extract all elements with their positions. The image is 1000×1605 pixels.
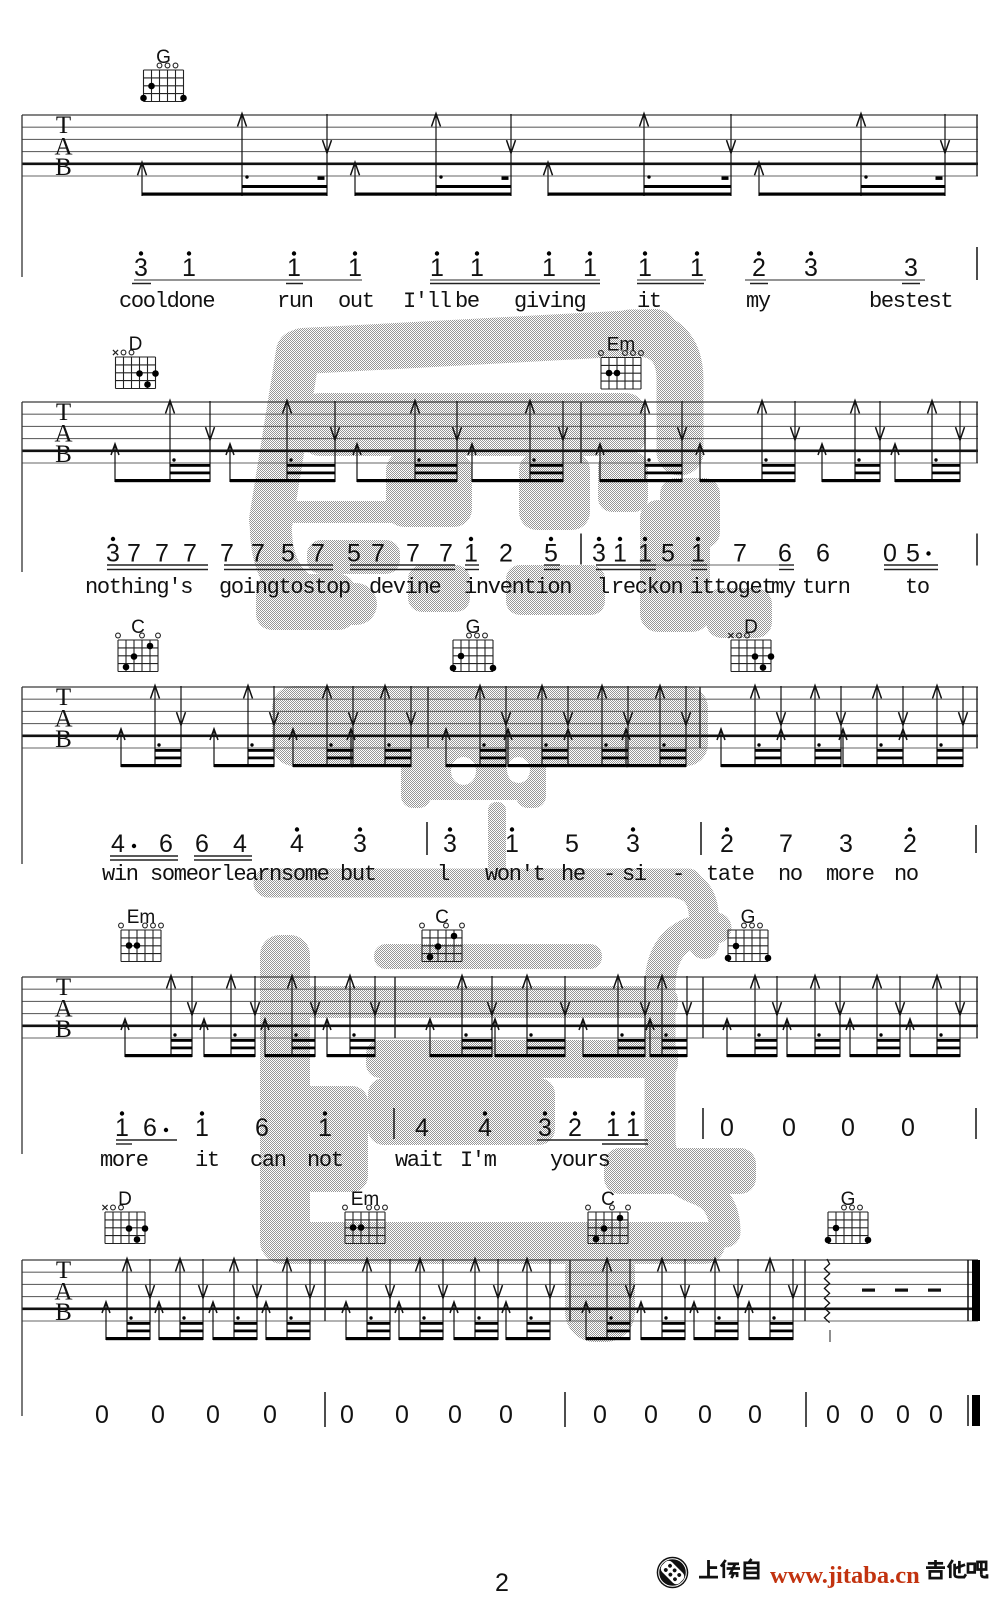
svg-text:0: 0 [860,1401,874,1429]
svg-text:no: no [778,862,802,887]
svg-text:G: G [156,47,171,68]
svg-text:1: 1 [638,540,652,568]
svg-text:more: more [826,862,874,887]
svg-text:B: B [55,441,72,468]
svg-text:but: but [340,862,376,887]
svg-text:7: 7 [220,540,234,568]
svg-text:0: 0 [782,1114,796,1142]
svg-text:7: 7 [155,540,169,568]
svg-text:Em: Em [127,907,156,928]
svg-text:won't: won't [485,862,545,887]
svg-text:not: not [307,1148,343,1173]
svg-text:0: 0 [826,1401,840,1429]
svg-text:7: 7 [733,540,747,568]
svg-text:0: 0 [593,1401,607,1429]
svg-text:2: 2 [568,1114,582,1142]
svg-text:devine: devine [369,575,441,600]
svg-text:l: l [597,575,609,600]
svg-text:1: 1 [430,254,444,282]
svg-text:3: 3 [904,254,918,282]
svg-text:0: 0 [95,1401,109,1429]
svg-text:1: 1 [348,254,362,282]
svg-text:3: 3 [106,540,120,568]
svg-text:6: 6 [143,1114,157,1142]
svg-text:C: C [131,617,145,638]
svg-text:reckon: reckon [611,575,683,600]
svg-text:he: he [561,862,585,887]
svg-text:Em: Em [351,1189,380,1210]
svg-text:my: my [771,575,796,600]
svg-text:I'm: I'm [460,1148,497,1173]
svg-text:6: 6 [195,830,209,858]
svg-text:7: 7 [183,540,197,568]
svg-text:0: 0 [883,540,897,568]
svg-text:-: - [672,862,684,887]
svg-text:-: - [603,862,615,887]
svg-text:2: 2 [495,1569,509,1597]
svg-text:more: more [100,1148,148,1173]
svg-text:5: 5 [544,540,558,568]
svg-text:5: 5 [281,540,295,568]
svg-text:C: C [601,1189,615,1210]
svg-text:invention: invention [464,575,571,600]
svg-text:wait: wait [395,1148,443,1173]
svg-text:1: 1 [583,254,597,282]
svg-text:Em: Em [607,335,636,356]
svg-text:tate: tate [706,862,754,887]
svg-text:l: l [437,862,449,887]
svg-text:I'll: I'll [403,289,451,314]
svg-text:D: D [118,1189,132,1210]
svg-text:6: 6 [159,830,173,858]
svg-text:2: 2 [752,254,766,282]
svg-text:3: 3 [538,1114,552,1142]
svg-text:7: 7 [311,540,325,568]
svg-text:3: 3 [443,830,457,858]
svg-text:1: 1 [287,254,301,282]
svg-text:ittoget: ittoget [690,575,773,600]
svg-text:bestest: bestest [869,289,952,314]
svg-text:0: 0 [644,1401,658,1429]
svg-text:someorlearnsome: someorlearnsome [150,862,329,887]
svg-text:5: 5 [565,830,579,858]
svg-text:2: 2 [720,830,734,858]
svg-text:C: C [435,907,449,928]
svg-text:2: 2 [903,830,917,858]
svg-text:B: B [55,1299,72,1326]
svg-text:no: no [894,862,918,887]
svg-text:1: 1 [690,254,704,282]
svg-text:5: 5 [347,540,361,568]
svg-text:6: 6 [816,540,830,568]
svg-text:G: G [741,907,756,928]
svg-text:cooldone: cooldone [119,289,214,314]
svg-text:7: 7 [779,830,793,858]
svg-text:4: 4 [233,830,247,858]
svg-text:1: 1 [606,1114,620,1142]
svg-text:G: G [466,617,481,638]
svg-text:4: 4 [415,1114,429,1142]
svg-text:si: si [622,862,647,887]
svg-text:3: 3 [592,540,606,568]
svg-text:5: 5 [906,540,920,568]
svg-text:www.jitaba.cn: www.jitaba.cn [770,1562,920,1589]
svg-text:0: 0 [206,1401,220,1429]
svg-text:6: 6 [778,540,792,568]
svg-text:D: D [744,617,758,638]
svg-text:0: 0 [263,1401,277,1429]
svg-text:1: 1 [464,540,478,568]
svg-text:nothing's: nothing's [85,575,192,600]
svg-text:1: 1 [115,1114,129,1142]
svg-text:turn: turn [802,575,850,600]
svg-text:4: 4 [111,830,125,858]
svg-text:4: 4 [478,1114,492,1142]
svg-text:0: 0 [841,1114,855,1142]
svg-text:0: 0 [901,1114,915,1142]
svg-text:1: 1 [318,1114,332,1142]
svg-text:1: 1 [691,540,705,568]
svg-text:1: 1 [505,830,519,858]
svg-text:0: 0 [748,1401,762,1429]
svg-text:0: 0 [720,1114,734,1142]
svg-text:win: win [102,862,138,887]
svg-text:yours: yours [550,1148,610,1173]
svg-text:1: 1 [470,254,484,282]
svg-text:giving: giving [514,289,586,314]
svg-text:to: to [905,575,929,600]
svg-text:D: D [129,334,143,355]
svg-text:1: 1 [542,254,556,282]
svg-text:B: B [55,726,72,753]
svg-text:2: 2 [499,540,513,568]
svg-text:0: 0 [340,1401,354,1429]
svg-text:0: 0 [395,1401,409,1429]
svg-text:3: 3 [839,830,853,858]
svg-text:1: 1 [626,1114,640,1142]
svg-text:0: 0 [448,1401,462,1429]
svg-text:out: out [338,289,374,314]
svg-text:0: 0 [896,1401,910,1429]
svg-text:7: 7 [251,540,265,568]
svg-text:0: 0 [499,1401,513,1429]
svg-text:1: 1 [195,1114,209,1142]
svg-text:7: 7 [127,540,141,568]
svg-text:it: it [195,1148,219,1173]
svg-text:3: 3 [353,830,367,858]
svg-text:0: 0 [151,1401,165,1429]
svg-text:4: 4 [290,830,304,858]
svg-text:can: can [250,1148,286,1173]
svg-text:7: 7 [371,540,385,568]
svg-text:3: 3 [134,254,148,282]
svg-text:3: 3 [804,254,818,282]
svg-text:1: 1 [638,254,652,282]
svg-text:be: be [455,289,479,314]
svg-text:1: 1 [182,254,196,282]
svg-text:0: 0 [929,1401,943,1429]
svg-text:B: B [55,1016,72,1043]
svg-text:B: B [55,154,72,181]
svg-text:G: G [841,1189,856,1210]
svg-text:goingtostop: goingtostop [219,575,350,600]
svg-text:3: 3 [626,830,640,858]
svg-text:7: 7 [406,540,420,568]
svg-text:1: 1 [613,540,627,568]
svg-text:6: 6 [255,1114,269,1142]
svg-text:0: 0 [698,1401,712,1429]
svg-text:5: 5 [661,540,675,568]
svg-text:my: my [746,289,771,314]
svg-text:run: run [277,289,313,314]
svg-text:7: 7 [439,540,453,568]
svg-text:it: it [637,289,661,314]
